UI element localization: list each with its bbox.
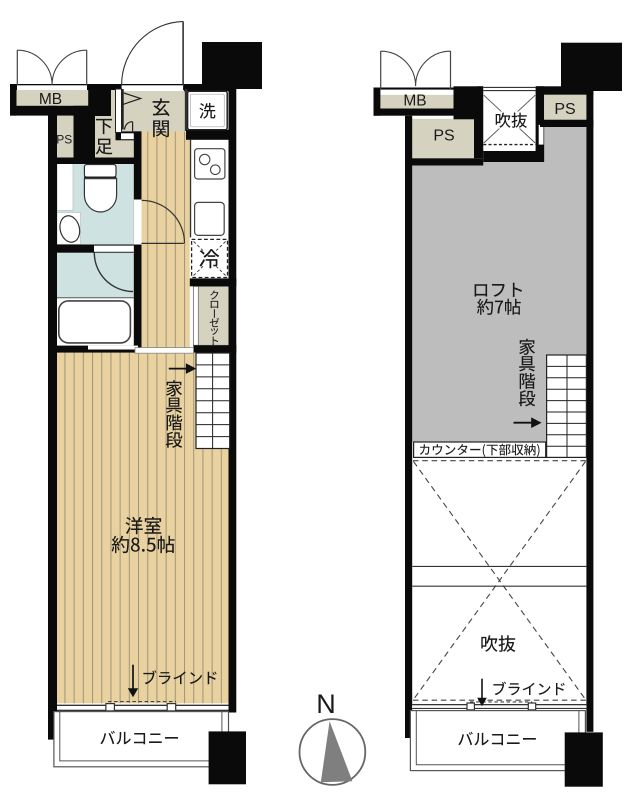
svg-text:MB: MB	[403, 93, 426, 110]
svg-text:PS: PS	[56, 133, 72, 147]
svg-text:MB: MB	[39, 91, 62, 108]
svg-text:PS: PS	[554, 101, 575, 118]
svg-text:PS: PS	[433, 128, 454, 145]
svg-text:N: N	[316, 689, 336, 719]
